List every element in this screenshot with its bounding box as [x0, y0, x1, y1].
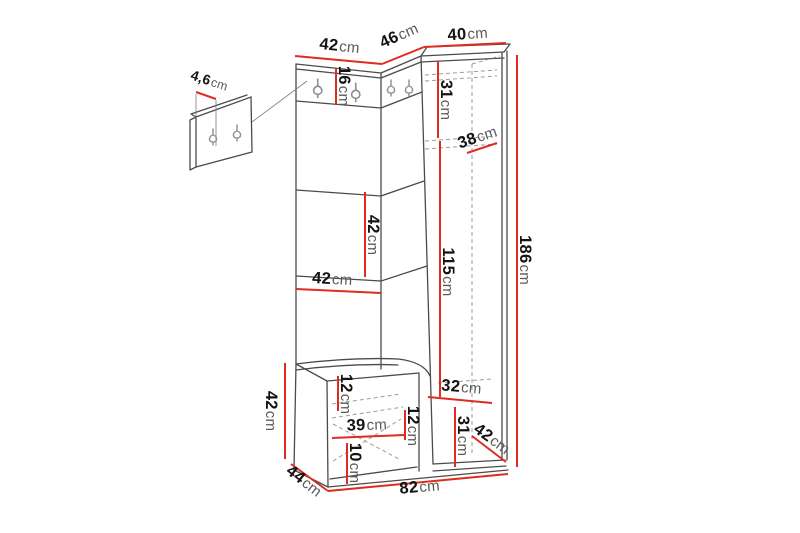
coat-hook-icon: [314, 79, 322, 97]
dimension-line-top-left-width: [295, 56, 382, 64]
dimension-label-bench-top-gap: 12cm: [337, 374, 355, 414]
dimension-label-hook-panel-height: 16cm: [335, 66, 353, 106]
dimension-label-wardrobe-depth-top: 38cm: [455, 122, 499, 152]
dimension-label-left-section-height: 42cm: [364, 215, 382, 255]
dimension-label-wardrobe-middle-height: 115cm: [439, 248, 457, 297]
dimension-label-left-section-width: 42cm: [312, 269, 353, 289]
dimension-label-top-corner-width: 46cm: [377, 19, 421, 52]
dimension-label-bench-bottom-gap: 10cm: [346, 443, 364, 483]
coat-hook-icon: [233, 125, 240, 141]
dimension-label-hook-panel-depth: 4,6cm: [189, 67, 231, 94]
coat-hook-icon: [209, 129, 216, 145]
dimension-label-total-height: 186cm: [516, 235, 534, 285]
dimension-line-left-section-width: [296, 289, 381, 293]
dimension-label-top-right-width: 40cm: [447, 24, 489, 45]
dimension-label-bench-shelf-gap: 12cm: [404, 406, 422, 446]
hidden-lines: [332, 56, 500, 461]
dimension-labels: 42cm 46cm 40cm 4,6cm 16cm 31cm 38cm 42cm…: [189, 19, 534, 501]
dimension-line-hook-panel-depth: [196, 92, 216, 99]
dimension-label-total-width: 82cm: [399, 476, 441, 497]
dimension-label-wardrobe-top-section: 31cm: [437, 80, 455, 120]
dimension-label-wardrobe-bottom-section: 31cm: [454, 416, 472, 456]
dimension-label-wardrobe-inner-width: 32cm: [441, 376, 483, 397]
coat-hooks: [209, 79, 412, 145]
coat-hook-icon: [387, 80, 394, 96]
dimension-label-top-left-width: 42cm: [319, 35, 361, 57]
dimension-label-bench-inner-width: 39cm: [346, 415, 387, 434]
furniture-outline: [294, 44, 510, 487]
dimension-line-bench-inner-width: [332, 435, 404, 438]
dimension-line-wardrobe-inner-width: [428, 397, 492, 403]
dimension-label-bench-depth: 44cm: [283, 462, 326, 501]
furniture-diagram: 42cm 46cm 40cm 4,6cm 16cm 31cm 38cm 42cm…: [0, 0, 800, 533]
diagram-canvas: 42cm 46cm 40cm 4,6cm 16cm 31cm 38cm 42cm…: [0, 0, 800, 533]
coat-hook-icon: [405, 80, 412, 96]
hook-panel-inset: [190, 81, 307, 170]
dimension-label-bench-height: 42cm: [262, 391, 280, 431]
